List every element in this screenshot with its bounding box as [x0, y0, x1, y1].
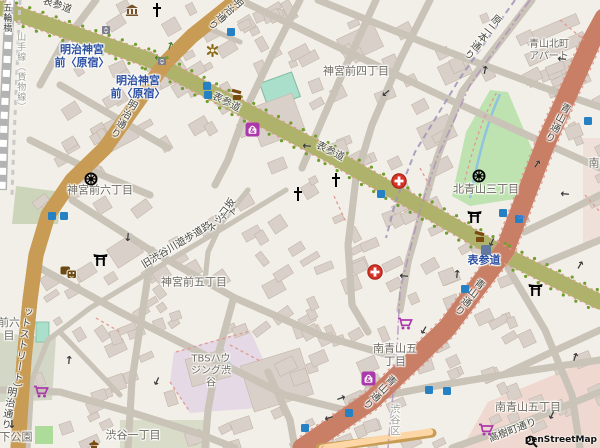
magnifier-icon	[525, 435, 538, 448]
map-base-layer	[0, 0, 600, 448]
osm-attribution: penStreetMap	[525, 435, 597, 445]
map-canvas[interactable]: 神宮前四丁目神宮前六丁目神宮前五丁目北青山三丁目南青山五 丁目南青山五丁目渋谷一…	[0, 0, 600, 448]
